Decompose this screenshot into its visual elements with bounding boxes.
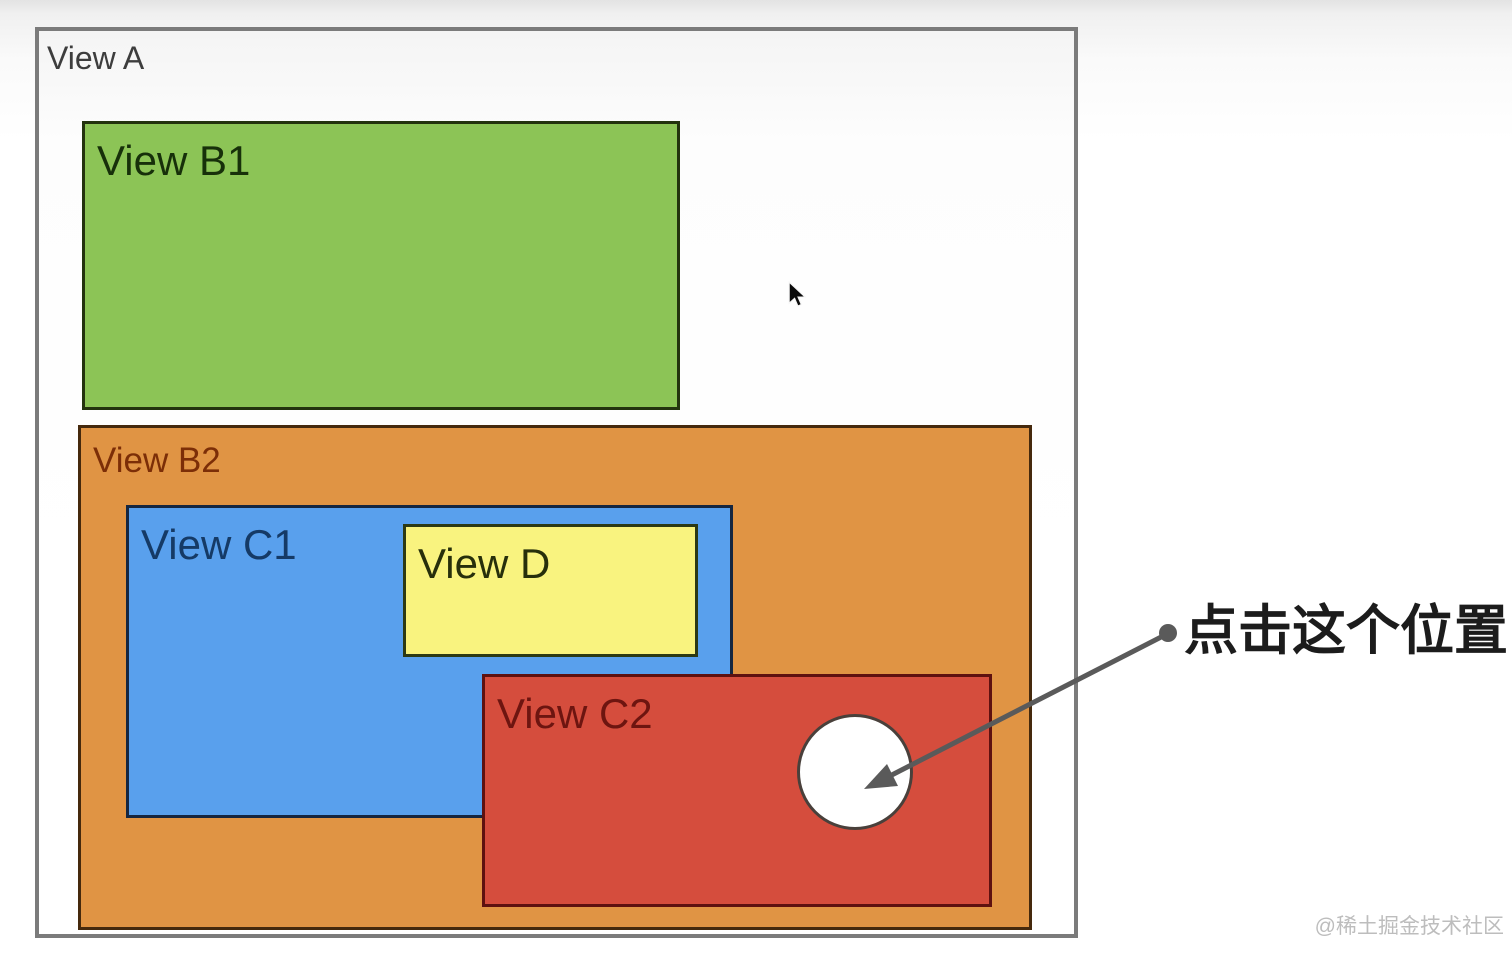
view-c2-label: View C2 (497, 691, 653, 737)
view-c1-label: View C1 (141, 522, 297, 568)
view-b1-label: View B1 (97, 138, 250, 184)
view-b2-label: View B2 (93, 442, 221, 481)
annotation-arrow-icon (840, 600, 1185, 815)
annotation-label: 点击这个位置 (1184, 604, 1508, 658)
view-b1-box: View B1 (82, 121, 680, 410)
view-a-label: View A (47, 41, 144, 76)
diagram-canvas: View A View B1 View B2 View C1 View D Vi… (0, 0, 1512, 961)
watermark: @稀土掘金技术社区 (1315, 910, 1504, 940)
view-d-box: View D (403, 524, 698, 657)
view-d-label: View D (418, 541, 550, 587)
mouse-cursor-icon (787, 281, 809, 311)
